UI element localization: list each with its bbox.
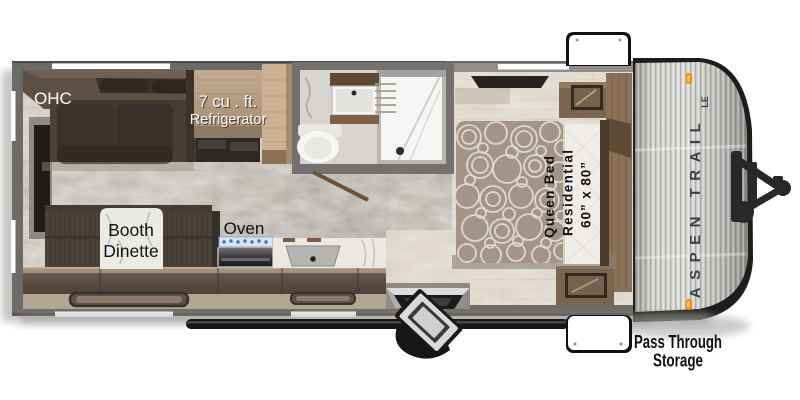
svg-text:60” x 80”: 60” x 80”	[579, 162, 594, 228]
svg-text:OHC: OHC	[34, 89, 72, 108]
svg-text:ASPEN TRAIL: ASPEN TRAIL	[687, 116, 704, 299]
svg-text:Queen Bed: Queen Bed	[542, 156, 557, 238]
svg-text:Booth: Booth	[108, 220, 154, 240]
svg-text:Pass Through: Pass Through	[634, 332, 722, 352]
svg-text:LE: LE	[700, 96, 710, 108]
svg-text:Residential: Residential	[561, 150, 576, 236]
svg-text:Refrigerator: Refrigerator	[190, 112, 267, 128]
svg-text:7 cu . ft.: 7 cu . ft.	[199, 93, 258, 111]
svg-text:Storage: Storage	[653, 351, 703, 371]
svg-text:Dinette: Dinette	[103, 241, 158, 261]
svg-text:Oven: Oven	[224, 219, 265, 238]
